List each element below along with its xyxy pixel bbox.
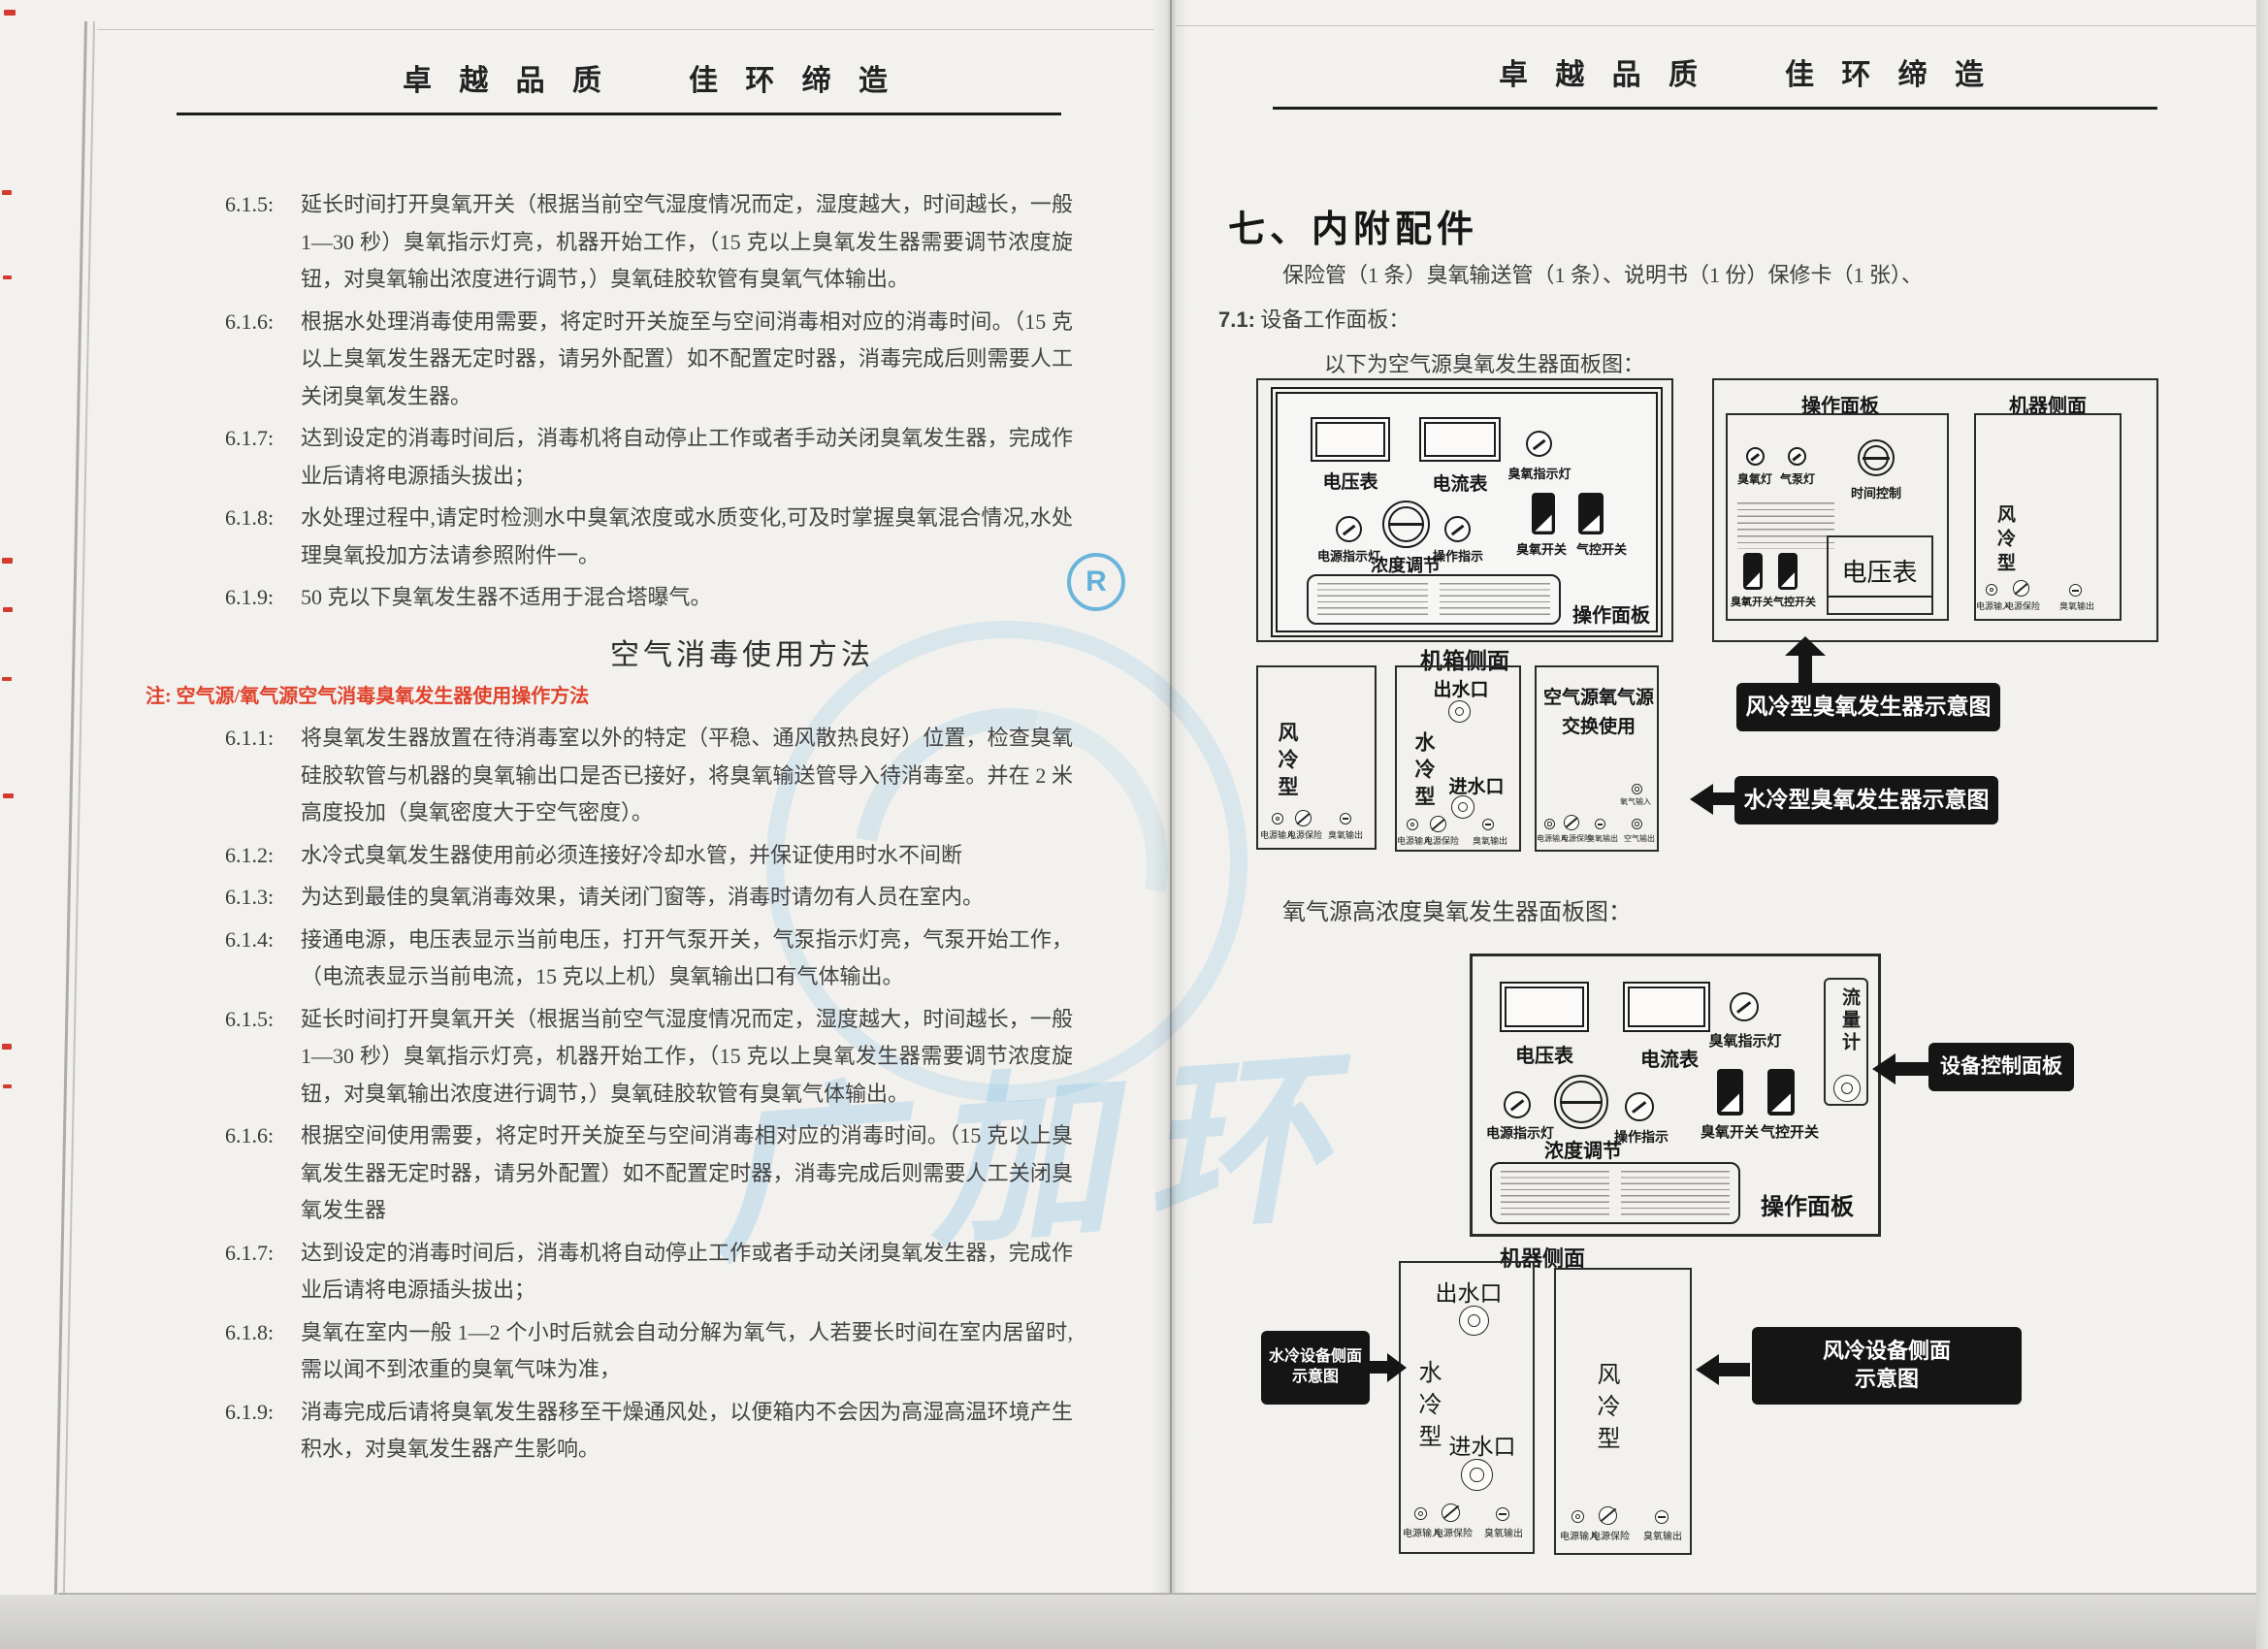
power-in-jack [1986,584,1997,596]
ozone-switch-label: 臭氧开关 [1728,594,1776,609]
fan-side-callout: 风冷设备侧面 示意图 [1752,1327,2022,1405]
operation-panel-label: 操作面板 [1754,1187,1861,1221]
oxygen-in-jack [1632,784,1642,794]
water-out-label: 出水口 [1428,1275,1509,1308]
power-fuse-label: 电源保险 [1287,828,1322,841]
pump-light-label: 气泵灯 [1772,470,1823,487]
ozone-out-label: 臭氧输出 [1587,833,1618,844]
ozone-out-label: 臭氧输出 [1643,1528,1682,1542]
water-side-callout-line2: 示意图 [1292,1368,1339,1388]
fig2-intro-line: 氧气源高浓度臭氧发生器面板图： [1282,892,1632,926]
red-scan-mark [4,10,16,16]
gutter-line [1170,0,1172,1649]
fan-cooled-machine-box: 风冷型 电源输入 电源保险 臭氧输出 [1554,1268,1692,1555]
operation-lamp-label: 操作指示 [1423,546,1493,565]
scan-page-edge [53,21,87,1636]
water-side-callout: 水冷设备侧面 示意图 [1261,1331,1370,1405]
list-item: 6.1.4: 接通电源，电压表显示当前电压，打开气泵开关，气泵指示灯亮，气泵开始… [225,921,1073,996]
operation-indicator-lamp [1444,516,1471,542]
fan-side-callout-line1: 风冷设备侧面 [1823,1338,1951,1366]
ozone-switch-label: 臭氧开关 [1510,539,1572,558]
item-text: 50 克以下臭氧发生器不适用于混合塔曝气。 [301,579,1073,617]
ozone-switch-rocker [1717,1069,1743,1115]
power-fuse-label: 电源保险 [2005,599,2040,612]
air-disinfection-note: 注: 空气源/氧气源空气消毒臭氧发生器使用操作方法 [146,680,589,708]
item-text: 水冷式臭氧发生器使用前必须连接好冷却水管，并保证使用时水不间断 [301,837,1073,875]
ozone-switch-rocker [1743,553,1763,590]
power-in-jack [1571,1510,1584,1523]
voltmeter-window-label: 电压表 [1829,553,1930,589]
red-scan-mark [3,793,14,798]
scan-bottom-band [0,1595,2268,1649]
power-fuse-label: 电源保险 [1434,1525,1473,1539]
item-number: 6.1.8: [225,1314,274,1352]
item-text: 根据水处理消毒使用需要，将定时开关旋至与空间消毒相对应的消毒时间。（15 克以上… [301,304,1073,416]
subsection-7-1: 7.1: 设备工作面板： [1218,303,1409,334]
fan-generator-panel: 臭氧灯 气泵灯 时间控制 臭氧开关 气控开关 电压表 [1726,413,1949,621]
ammeter-label: 电流表 [1626,1044,1713,1072]
air-out-label: 空气输出 [1624,833,1655,844]
flow-meter: 流量计 [1824,978,1868,1106]
power-indicator-lamp [1336,516,1362,542]
fig1-chassis-outer-box: 电压表 电流表 臭氧指示灯 电源指示灯 浓度调节 操作指示 臭氧开关 气控开关 … [1256,378,1673,642]
motto-rule-left [177,113,1061,115]
water-in-port [1461,1459,1493,1491]
ozone-indicator-lamp [1730,992,1759,1021]
item-text: 延长时间打开臭氧开关（根据当前空气湿度情况而定，湿度越大，时间越长，一般 1—3… [301,186,1073,299]
accessories-line: 保险管（1 条）臭氧输送管（1 条）、说明书（1 份）保修卡（1 张）、 [1282,258,1923,289]
air-out-jack [1632,819,1642,829]
fan-cooled-vertical-label: 风冷型 [1589,1362,1623,1458]
ammeter-display [1623,982,1710,1032]
fan-cooled-vertical-label: 风冷型 [1992,504,2018,577]
air-switch-rocker [1578,493,1604,534]
operation-panel-label: 操作面板 [1567,599,1656,628]
item-number: 6.1.7: [225,1235,274,1273]
list-item: 6.1.2: 水冷式臭氧发生器使用前必须连接好冷却水管，并保证使用时水不间断 [225,837,1073,875]
item-number: 6.1.5: [225,1001,274,1039]
list-item: 6.1.1: 将臭氧发生器放置在待消毒室以外的特定（平稳、通风散热良好）位置，检… [225,720,1073,832]
air-switch-rocker [1767,1069,1795,1115]
water-side-callout-line1: 水冷设备侧面 [1269,1347,1362,1368]
power-indicator-lamp [1504,1091,1531,1118]
water-generator-callout: 水冷型臭氧发生器示意图 [1734,776,1998,824]
fan-cooled-side-box: 风冷型 电源输入 电源保险 臭氧输出 [1256,665,1377,850]
power-fuse-jack [1295,810,1312,826]
item-number: 6.1.4: [225,921,274,959]
motto-left: 卓 越 品 质 佳 环 缔 造 [403,56,897,99]
fan-generator-callout-text: 风冷型臭氧发生器示意图 [1746,693,1992,722]
fine-print-column [1317,583,1428,616]
item-text: 延长时间打开臭氧开关（根据当前空气湿度情况而定，湿度越大，时间越长，一般 1—3… [301,1001,1073,1114]
ozone-lamp-label: 臭氧指示灯 [1703,1030,1787,1051]
registered-trademark-watermark: R [1067,553,1125,611]
subsection-number: 7.1: [1218,307,1255,332]
registered-letter: R [1085,566,1107,598]
power-fuse-jack [1599,1506,1617,1525]
list-item: 6.1.8: 臭氧在室内一般 1—2 个小时后就会自动分解为氧气，人若要长时间在… [225,1314,1073,1389]
list-item: 6.1.7: 达到设定的消毒时间后，消毒机将自动停止工作或者手动关闭臭氧发生器，… [225,1235,1073,1309]
motto-rule-right [1273,107,2157,110]
item-number: 6.1.9: [225,579,274,617]
swap-label-line2: 交换使用 [1539,712,1659,738]
power-fuse-label: 电源保险 [1591,1528,1630,1542]
operation-lamp-label: 操作指示 [1606,1127,1676,1147]
water-out-port [1459,1306,1489,1336]
water-in-label: 进水口 [1442,1428,1523,1461]
concentration-knob [1554,1075,1608,1129]
list-item: 6.1.6: 根据水处理消毒使用需要，将定时开关旋至与空间消毒相对应的消毒时间。… [225,304,1073,416]
section-7-title: 七、内附配件 [1228,199,1478,252]
red-scan-mark [2,558,13,564]
arrow-right-icon [1387,1353,1407,1382]
time-control-knob [1858,439,1895,476]
water-generator-callout-text: 水冷型臭氧发生器示意图 [1744,786,1990,815]
air-oxygen-swap-box: 空气源氧气源 交换使用 氧气输入 电源输入 电源保险 臭氧输出 空气输出 [1535,665,1659,852]
ammeter-label: 电流表 [1413,469,1507,496]
list-item: 6.1.8: 水处理过程中,请定时检测水中臭氧浓度或水质变化,可及时掌握臭氧混合… [225,500,1073,574]
power-fuse-jack [1430,816,1446,832]
arrow-left-shaft [1719,1363,1750,1376]
voltmeter-display [1311,417,1390,462]
red-scan-mark [3,607,13,612]
notice-fineprint-box [1490,1162,1740,1224]
ozone-out-jack [1340,813,1351,824]
fan-cooled-vertical-label: 风冷型 [1272,722,1301,803]
item-text: 消毒完成后请将臭氧发生器移至干燥通风处，以便箱内不会因为高湿高温环境产生积水，对… [301,1394,1073,1469]
ozone-out-label: 臭氧输出 [2059,599,2094,612]
power-in-jack [1272,813,1283,824]
fig1-intro-line: 以下为空气源臭氧发生器面板图： [1324,347,1644,378]
item-number: 6.1.9: [225,1394,274,1432]
red-scan-mark [2,190,12,195]
arrow-left-icon [1690,784,1713,815]
ozone-light-lamp [1746,447,1765,466]
device-panel-callout-text: 设备控制面板 [1940,1053,2062,1080]
item-text: 达到设定的消毒时间后，消毒机将自动停止工作或者手动关闭臭氧发生器，完成作业后请将… [301,420,1073,495]
fan-generator-callout: 风冷型臭氧发生器示意图 [1736,683,2000,731]
motto-right: 卓 越 品 质 佳 环 缔 造 [1499,50,1993,93]
power-fuse-jack [2013,580,2029,597]
oxygen-in-label: 氧气输入 [1620,796,1651,807]
power-in-jack [1544,819,1555,829]
fig1-fan-generator-outer-box: 操作面板 机器侧面 臭氧灯 气泵灯 时间控制 臭氧开关 气控开关 电压表 风冷型… [1712,378,2158,642]
scan-page-edge [62,21,95,1636]
arrow-left-shaft [1895,1062,1928,1076]
fine-print-block [1737,502,1834,549]
fine-print-column [1621,1171,1730,1215]
ozone-indicator-lamp [1526,431,1552,457]
power-fuse-jack [1564,815,1579,830]
list-item: 6.1.5: 延长时间打开臭氧开关（根据当前空气湿度情况而定，湿度越大，时间越长… [225,186,1073,299]
water-out-label: 出水口 [1424,675,1498,701]
item-text: 达到设定的消毒时间后，消毒机将自动停止工作或者手动关闭臭氧发生器，完成作业后请将… [301,1235,1073,1309]
water-cooled-side-box: 出水口 水冷型 进水口 电源输入 电源保险 臭氧输出 [1395,665,1521,852]
fine-print-column [1501,1171,1609,1215]
water-in-label: 进水口 [1440,772,1513,798]
pump-light-lamp [1788,447,1806,466]
arrow-left-icon [1696,1354,1719,1385]
ozone-out-label: 臭氧输出 [1473,834,1507,847]
water-cooled-machine-box: 出水口 水冷型 进水口 电源输入 电源保险 臭氧输出 [1399,1261,1535,1554]
list-item: 6.1.7: 达到设定的消毒时间后，消毒机将自动停止工作或者手动关闭臭氧发生器，… [225,420,1073,495]
water-cooled-vertical-label: 水冷型 [1409,731,1438,813]
fan-side-callout-line2: 示意图 [1855,1366,1919,1394]
item-text: 根据空间使用需要，将定时开关旋至与空间消毒相对应的消毒时间。（15 克以上臭氧发… [301,1117,1073,1230]
voltmeter-window: 电压表 [1827,535,1933,615]
voltmeter-label: 电压表 [1301,468,1400,494]
subsection-label: 设备工作面板： [1260,307,1409,332]
voltmeter-label: 电压表 [1500,1040,1589,1068]
air-switch-label: 气控开关 [1758,1121,1822,1142]
item-number: 6.1.5: [225,186,274,224]
power-in-jack [1414,1507,1427,1520]
list-item: 6.1.9: 50 克以下臭氧发生器不适用于混合塔曝气。 [225,579,1073,617]
air-disinfection-list: 6.1.1: 将臭氧发生器放置在待消毒室以外的特定（平稳、通风散热良好）位置，检… [225,720,1073,1473]
air-switch-label: 气控开关 [1571,539,1633,558]
voltmeter-window-divider [1829,596,1931,598]
red-scan-mark [2,677,12,681]
red-scan-mark [2,1044,12,1050]
scan-right-edge [2256,0,2268,1649]
flow-meter-dial [1833,1075,1861,1102]
fig1-operation-panel: 电压表 电流表 臭氧指示灯 电源指示灯 浓度调节 操作指示 臭氧开关 气控开关 … [1276,392,1658,632]
item-number: 6.1.8: [225,500,274,537]
ozone-out-label: 臭氧输出 [1484,1525,1523,1539]
air-switch-label: 气控开关 [1770,594,1819,609]
ozone-switch-label: 臭氧开关 [1698,1121,1762,1142]
item-number: 6.1.3: [225,879,274,917]
item-number: 6.1.1: [225,720,274,758]
ozone-out-jack [2069,584,2082,597]
item-number: 6.1.7: [225,420,274,458]
arrow-up-icon [1785,636,1826,656]
list-item: 6.1.3: 为达到最佳的臭氧消毒效果，请关闭门窗等，消毒时请勿有人员在室内。 [225,879,1073,917]
ozone-out-jack [1595,819,1605,829]
ozone-out-label: 臭氧输出 [1328,828,1363,841]
concentration-knob [1382,501,1430,548]
water-in-port [1451,795,1474,819]
power-fuse-jack [1442,1503,1460,1522]
arrow-right-shaft [1370,1361,1387,1374]
ozone-lamp-label: 臭氧指示灯 [1499,464,1580,482]
fine-print-column [1440,583,1550,616]
arrow-left-shaft [1711,792,1736,805]
scan-top-edge [97,29,1154,30]
water-treatment-list: 6.1.5: 延长时间打开臭氧开关（根据当前空气湿度情况而定，湿度越大，时间越长… [225,186,1073,622]
fan-generator-side: 风冷型 电源输入 电源保险 臭氧输出 [1974,413,2122,621]
flow-meter-label: 流量计 [1836,987,1863,1054]
power-in-jack [1407,819,1418,830]
item-number: 6.1.6: [225,304,274,341]
air-disinfection-title: 空气消毒使用方法 [587,630,897,673]
list-item: 6.1.9: 消毒完成后请将臭氧发生器移至干燥通风处，以便箱内不会因为高湿高温环… [225,1394,1073,1469]
red-scan-mark [3,275,12,279]
item-number: 6.1.6: [225,1117,274,1155]
device-panel-callout: 设备控制面板 [1928,1043,2074,1091]
arrow-up-shaft [1798,654,1812,683]
arrow-left-icon [1872,1053,1895,1084]
ozone-out-jack [1496,1507,1509,1521]
water-cooled-vertical-label: 水冷型 [1410,1360,1444,1456]
air-switch-rocker [1778,553,1798,590]
item-number: 6.1.2: [225,837,274,875]
scan-top-edge [1176,25,2256,26]
ammeter-display [1419,417,1501,462]
item-text: 为达到最佳的臭氧消毒效果，请关闭门窗等，消毒时请勿有人员在室内。 [301,879,1073,917]
voltmeter-display [1500,982,1589,1032]
item-text: 臭氧在室内一般 1—2 个小时后就会自动分解为氧气，人若要长时间在室内居留时,需… [301,1314,1073,1389]
item-text: 将臭氧发生器放置在待消毒室以外的特定（平稳、通风散热良好）位置，检查臭氧硅胶软管… [301,720,1073,832]
swap-label-line1: 空气源氧气源 [1539,683,1659,709]
ozone-switch-rocker [1532,493,1555,534]
list-item: 6.1.6: 根据空间使用需要，将定时开关旋至与空间消毒相对应的消毒时间。（15… [225,1117,1073,1230]
notice-fineprint-box [1307,574,1561,625]
red-scan-mark [3,1084,12,1088]
operation-indicator-lamp [1625,1092,1654,1121]
scanned-manual-spread: 广加环 R 卓 越 品 质 佳 环 缔 造 6.1.5: 延长时间打开臭氧开关（… [0,0,2268,1649]
power-fuse-label: 电源保险 [1424,834,1459,847]
ozone-out-jack [1482,819,1494,830]
item-text: 接通电源，电压表显示当前电压，打开气泵开关，气泵指示灯亮，气泵开始工作，（电流表… [301,921,1073,996]
fig2-operation-panel: 电压表 电流表 臭氧指示灯 流量计 电源指示灯 浓度调节 操作指示 臭氧开关 气… [1470,954,1881,1237]
list-item: 6.1.5: 延长时间打开臭氧开关（根据当前空气湿度情况而定，湿度越大，时间越长… [225,1001,1073,1114]
ozone-out-jack [1655,1510,1669,1524]
water-out-port [1448,700,1471,723]
item-text: 水处理过程中,请定时检测水中臭氧浓度或水质变化,可及时掌握臭氧混合情况,水处理臭… [301,500,1073,574]
time-control-label: 时间控制 [1842,483,1910,501]
